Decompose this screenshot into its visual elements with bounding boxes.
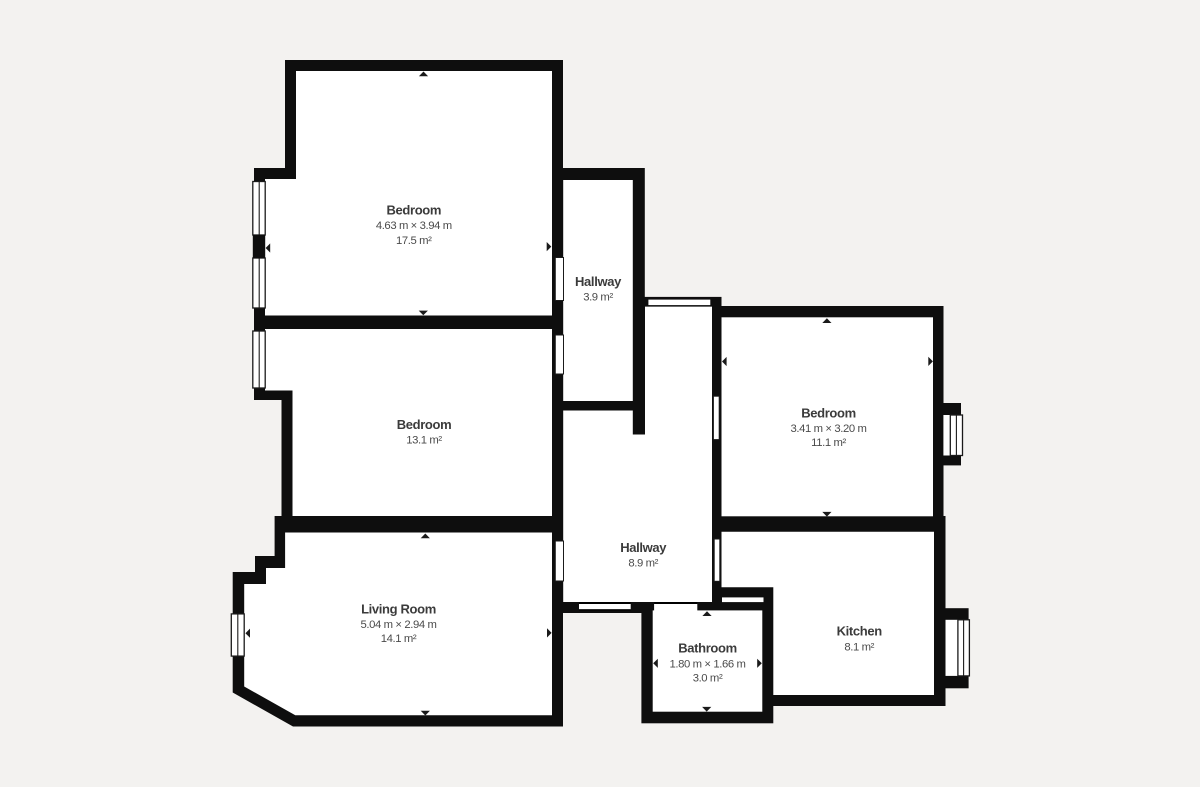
svg-text:Bedroom: Bedroom [397,417,452,432]
svg-text:Living Room: Living Room [361,602,436,617]
svg-text:Hallway: Hallway [575,274,622,289]
svg-text:3.9 m²: 3.9 m² [583,292,613,304]
svg-text:Bedroom: Bedroom [386,202,441,217]
svg-text:8.9 m²: 8.9 m² [628,558,658,570]
svg-text:Bathroom: Bathroom [678,641,737,656]
svg-text:14.1 m²: 14.1 m² [381,633,417,645]
svg-text:Kitchen: Kitchen [837,624,883,639]
svg-text:4.63 m × 3.94 m: 4.63 m × 3.94 m [376,220,452,232]
svg-text:Hallway: Hallway [620,540,667,555]
svg-text:5.04 m × 2.94 m: 5.04 m × 2.94 m [361,619,437,631]
svg-text:3.41 m × 3.20 m: 3.41 m × 3.20 m [791,423,867,435]
svg-text:11.1 m²: 11.1 m² [811,437,846,449]
svg-text:1.80 m × 1.66 m: 1.80 m × 1.66 m [670,658,746,670]
svg-text:Bedroom: Bedroom [801,406,856,421]
svg-text:3.0 m²: 3.0 m² [693,672,723,684]
svg-text:13.1 m²: 13.1 m² [406,435,442,447]
svg-text:8.1 m²: 8.1 m² [844,642,874,654]
svg-text:17.5 m²: 17.5 m² [396,235,432,247]
